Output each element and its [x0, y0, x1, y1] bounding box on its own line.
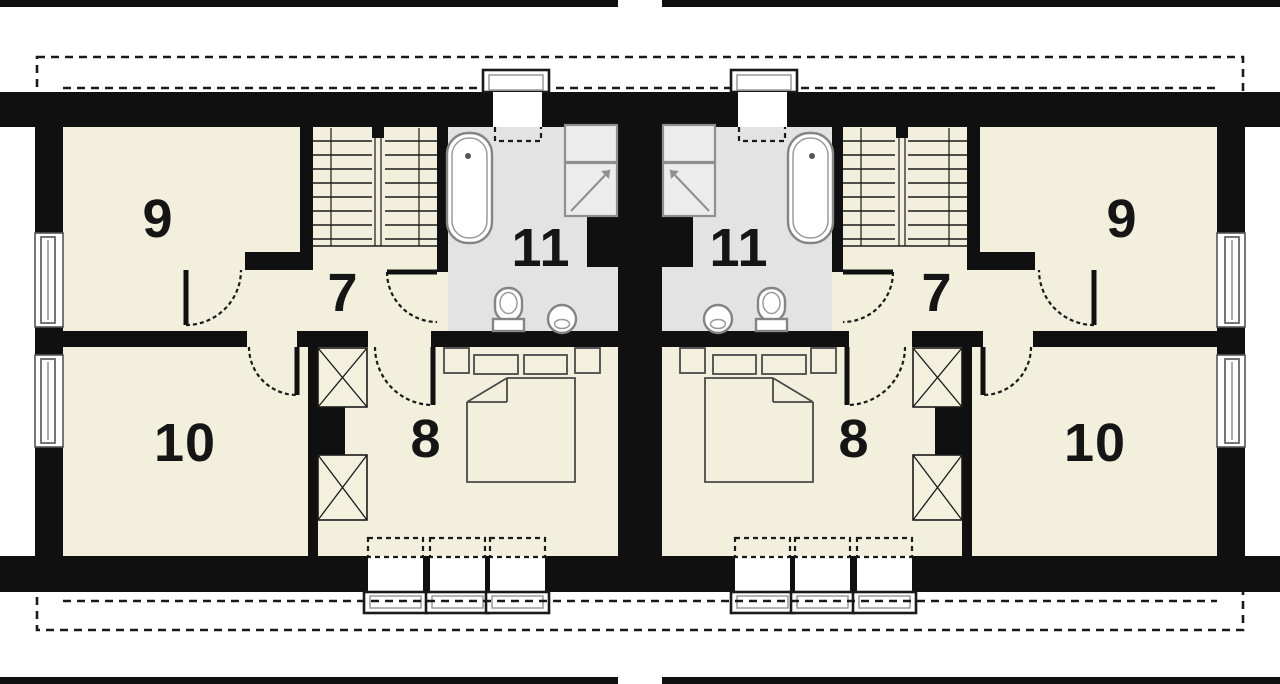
- wall-segment: [1033, 331, 1245, 347]
- wall-segment: [0, 556, 368, 592]
- pillow: [713, 355, 756, 374]
- duct-block: [935, 407, 962, 455]
- wall-segment: [35, 447, 63, 556]
- window: [1217, 355, 1245, 447]
- bathtub-drain-icon: [809, 153, 815, 159]
- nightstand: [811, 348, 836, 373]
- stair-divider-cap: [896, 127, 908, 138]
- wall-segment: [967, 252, 1035, 270]
- bathroom-cabinet: [565, 125, 617, 162]
- bathtub-drain-icon: [465, 153, 471, 159]
- staircase-right: [843, 127, 967, 246]
- wall-segment: [0, 677, 618, 684]
- bathtub: [447, 133, 492, 243]
- wardrobe: [913, 348, 962, 407]
- wall-segment: [245, 252, 313, 270]
- wall-segment: [542, 92, 738, 127]
- room-label-7-right: 7: [921, 263, 952, 323]
- wall-segment: [912, 331, 983, 347]
- wall-segment: [1217, 447, 1245, 556]
- wall-segment: [962, 347, 972, 556]
- window: [1217, 233, 1245, 327]
- wall-segment: [423, 556, 430, 592]
- room-label-10-right: 10: [1064, 413, 1126, 473]
- nightstand: [444, 348, 469, 373]
- bathtub: [788, 133, 833, 243]
- shower-cabin: [565, 163, 617, 216]
- room-label-8-left: 8: [410, 409, 441, 469]
- room-label-8-right: 8: [838, 409, 869, 469]
- wall-segment: [297, 331, 368, 347]
- toilet: [493, 288, 524, 331]
- wall-segment: [485, 556, 490, 592]
- shower-cabin: [663, 163, 715, 216]
- chimney-block: [587, 217, 693, 267]
- wall-segment: [0, 0, 618, 7]
- stair-divider-cap: [372, 127, 384, 138]
- room-label-11-right: 11: [709, 218, 768, 278]
- wall-segment: [431, 331, 618, 347]
- wall-segment: [912, 556, 1280, 592]
- floor-plan-drawing: 9 7 11 8 10 9 7 11 8 10: [0, 0, 1280, 684]
- party-wall: [618, 127, 662, 592]
- window: [35, 355, 63, 447]
- bathroom-cabinet: [663, 125, 715, 162]
- pillow: [524, 355, 567, 374]
- room-label-9-right: 9: [1106, 189, 1137, 249]
- wall-segment: [35, 127, 63, 233]
- nightstand: [575, 348, 600, 373]
- room-label-10-left: 10: [154, 413, 216, 473]
- room-label-9-left: 9: [142, 189, 173, 249]
- pillow: [762, 355, 806, 374]
- toilet: [756, 288, 787, 331]
- room-label-7-left: 7: [327, 263, 358, 323]
- wardrobe: [913, 455, 962, 520]
- room-label-11-left: 11: [511, 218, 570, 278]
- wall-segment: [790, 556, 795, 592]
- wall-segment: [662, 331, 849, 347]
- washbasin: [704, 305, 732, 333]
- wall-segment: [0, 92, 493, 127]
- wall-segment: [662, 677, 1280, 684]
- duct-block: [318, 407, 345, 455]
- wardrobe: [318, 455, 367, 520]
- wardrobe: [318, 348, 367, 407]
- washbasin: [548, 305, 576, 333]
- wall-segment: [787, 92, 1280, 127]
- wall-segment: [967, 127, 980, 258]
- wall-segment: [850, 556, 857, 592]
- wall-segment: [308, 347, 318, 556]
- pillow: [474, 355, 518, 374]
- floor-plan-canvas: 9 7 11 8 10 9 7 11 8 10: [0, 0, 1280, 684]
- window: [35, 233, 63, 327]
- wall-segment: [662, 0, 1280, 7]
- wall-segment: [1217, 127, 1245, 233]
- nightstand: [680, 348, 705, 373]
- walls: [0, 0, 1280, 684]
- wall-segment: [35, 331, 247, 347]
- wall-segment: [300, 127, 313, 258]
- staircase-left: [313, 127, 437, 246]
